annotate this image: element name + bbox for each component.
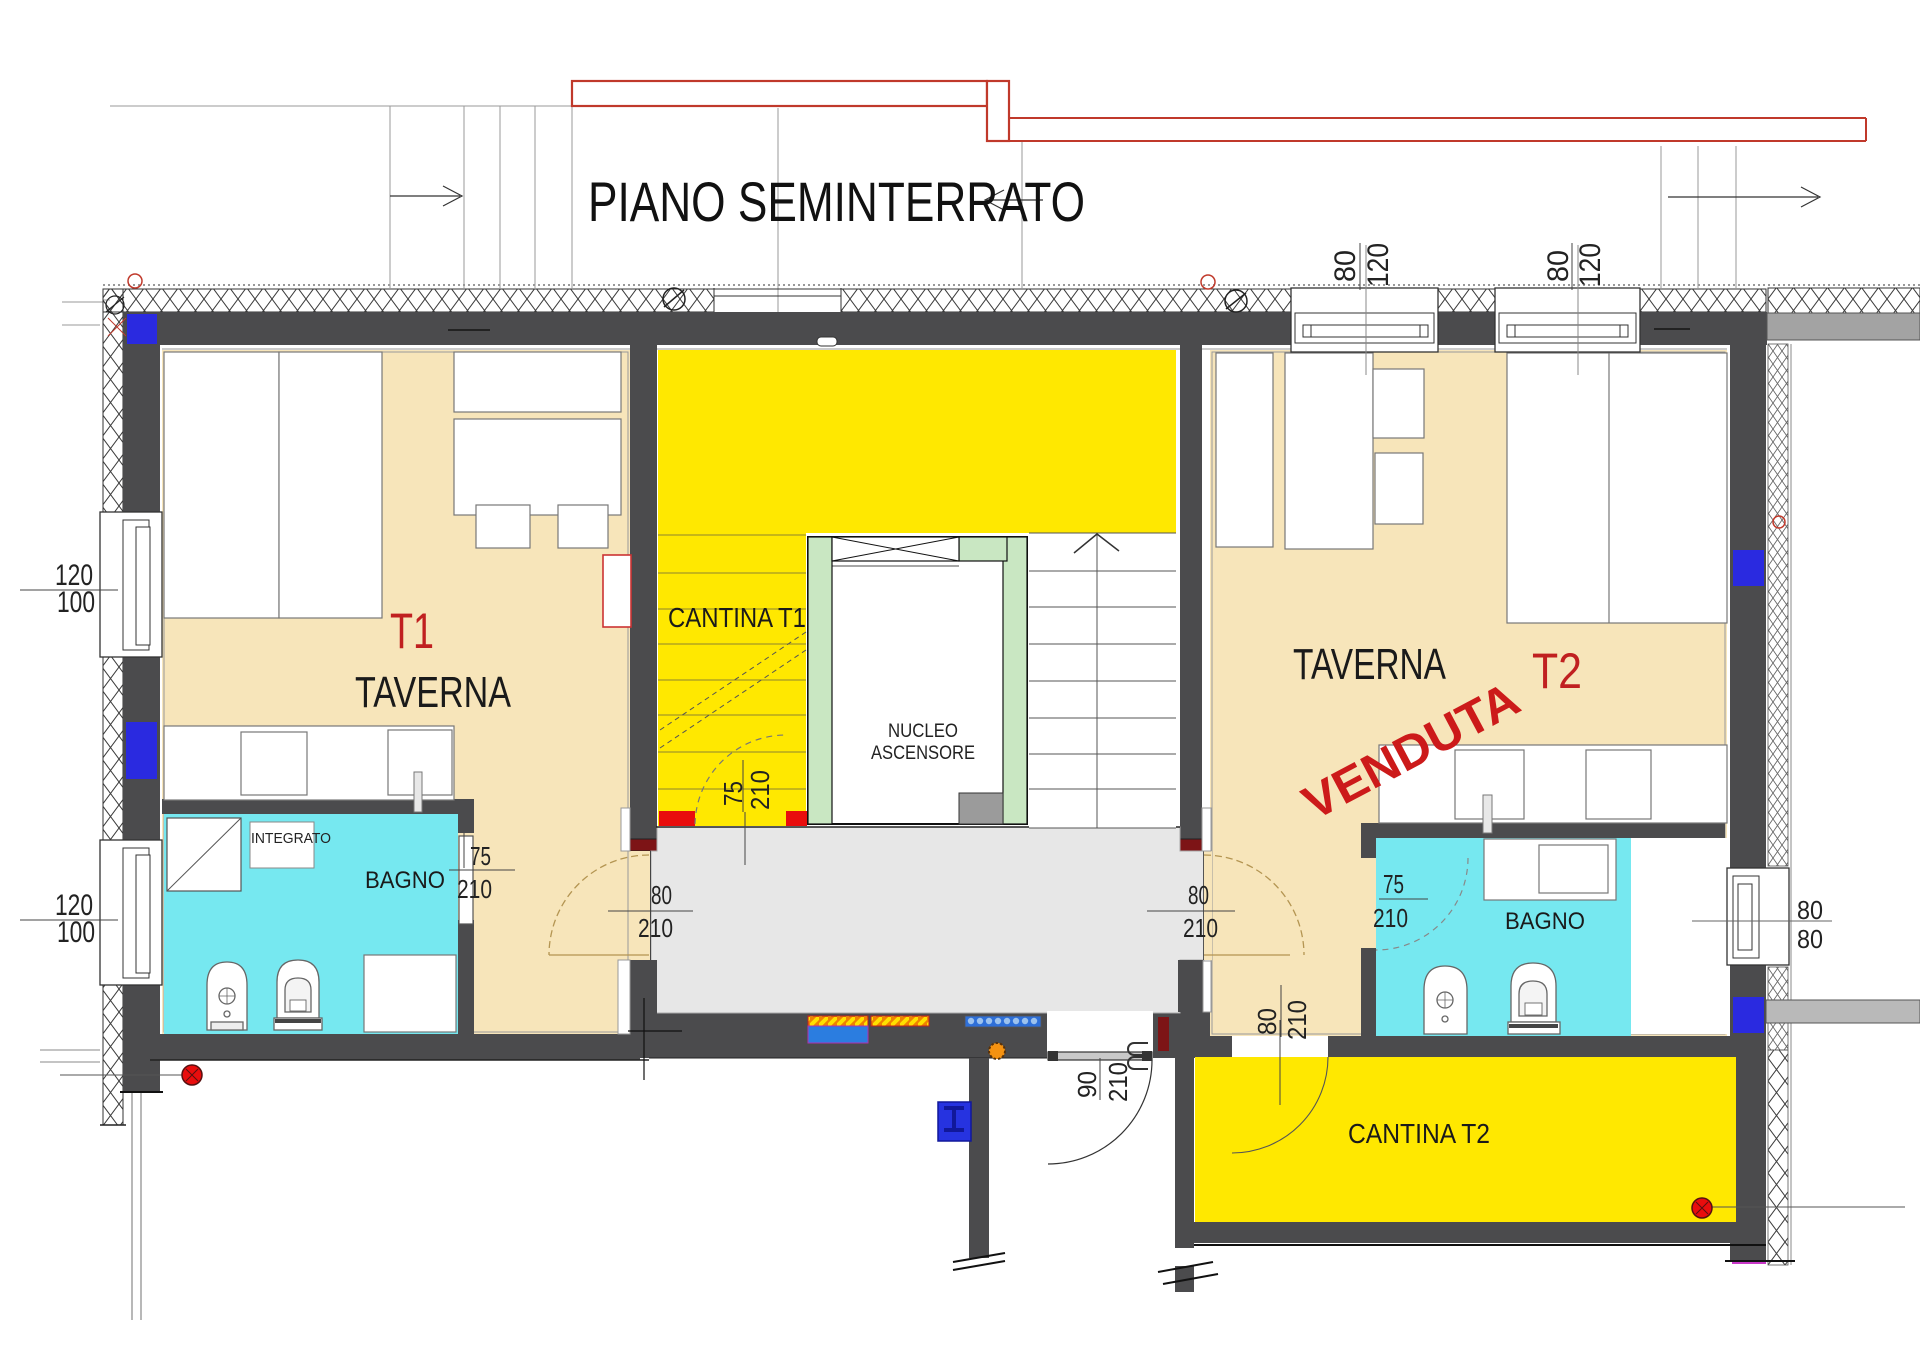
svg-text:210: 210 <box>745 770 775 810</box>
svg-text:T1: T1 <box>390 603 434 659</box>
svg-text:ASCENSORE: ASCENSORE <box>871 743 975 764</box>
svg-text:NUCLEO: NUCLEO <box>888 721 958 742</box>
svg-text:CANTINA T1: CANTINA T1 <box>668 602 806 633</box>
svg-text:210: 210 <box>1183 913 1218 943</box>
svg-text:80: 80 <box>651 880 672 910</box>
svg-text:TAVERNA: TAVERNA <box>1293 640 1446 689</box>
svg-text:210: 210 <box>1373 903 1408 933</box>
svg-text:INTEGRATO: INTEGRATO <box>251 830 331 847</box>
svg-text:120: 120 <box>1574 243 1607 287</box>
svg-text:75: 75 <box>1383 869 1404 899</box>
svg-text:TAVERNA: TAVERNA <box>355 668 511 717</box>
svg-text:T2: T2 <box>1532 643 1582 699</box>
svg-text:210: 210 <box>457 874 492 904</box>
svg-text:80: 80 <box>1797 924 1823 954</box>
svg-text:120: 120 <box>1362 243 1395 287</box>
svg-text:100: 100 <box>57 916 95 949</box>
svg-text:80: 80 <box>1329 250 1362 282</box>
svg-text:80: 80 <box>1188 880 1209 910</box>
svg-text:CANTINA T2: CANTINA T2 <box>1348 1118 1490 1149</box>
svg-text:BAGNO: BAGNO <box>1505 908 1585 935</box>
svg-text:210: 210 <box>1103 1062 1133 1102</box>
svg-text:80: 80 <box>1542 250 1575 282</box>
svg-text:100: 100 <box>57 586 95 619</box>
svg-text:BAGNO: BAGNO <box>365 867 445 894</box>
svg-text:75: 75 <box>470 841 491 871</box>
svg-text:210: 210 <box>1282 1000 1312 1040</box>
svg-text:90: 90 <box>1072 1071 1102 1098</box>
svg-text:210: 210 <box>638 913 673 943</box>
svg-text:80: 80 <box>1252 1008 1282 1035</box>
svg-text:PIANO SEMINTERRATO: PIANO SEMINTERRATO <box>588 170 1085 233</box>
